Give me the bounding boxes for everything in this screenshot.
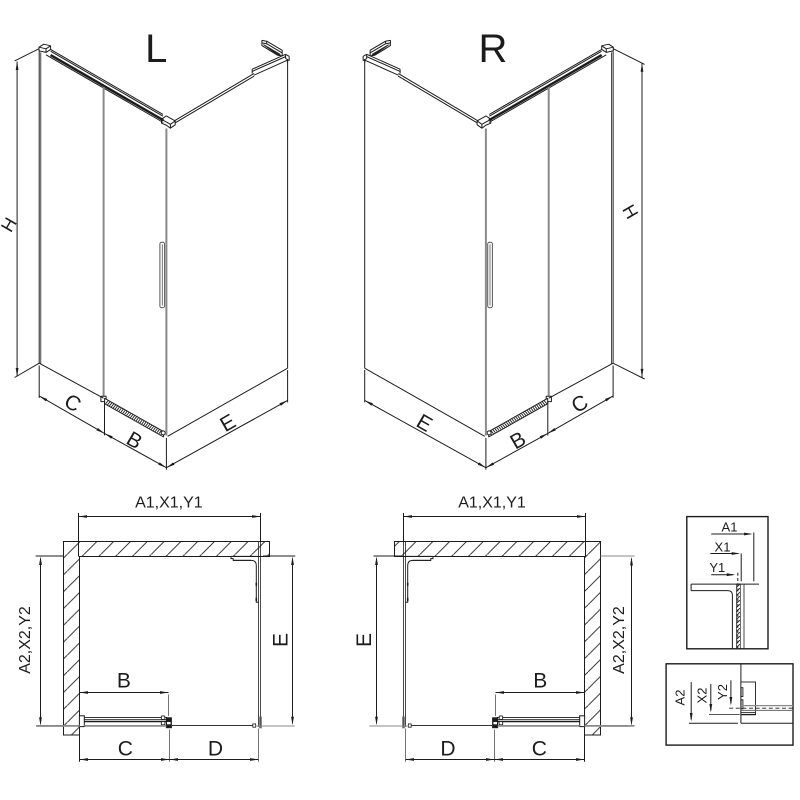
svg-text:Y2: Y2 — [715, 684, 730, 700]
svg-text:X2: X2 — [695, 688, 710, 704]
svg-text:A2: A2 — [673, 690, 688, 706]
svg-text:E: E — [353, 633, 376, 647]
svg-text:B: B — [533, 670, 547, 693]
svg-text:A1,X1,Y1: A1,X1,Y1 — [458, 495, 526, 512]
svg-text:X1: X1 — [715, 540, 731, 555]
svg-text:B: B — [117, 670, 131, 693]
svg-text:A2,X2,Y2: A2,X2,Y2 — [611, 606, 628, 674]
svg-text:E: E — [270, 633, 293, 647]
svg-text:A2,X2,Y2: A2,X2,Y2 — [17, 606, 34, 674]
svg-text:C: C — [532, 737, 547, 760]
svg-text:R: R — [478, 27, 507, 71]
svg-text:Y1: Y1 — [709, 560, 725, 575]
svg-text:D: D — [440, 737, 455, 760]
svg-text:A1: A1 — [722, 520, 738, 535]
svg-text:D: D — [208, 737, 223, 760]
svg-text:C: C — [118, 737, 133, 760]
svg-text:L: L — [145, 27, 167, 71]
svg-text:A1,X1,Y1: A1,X1,Y1 — [135, 495, 203, 512]
